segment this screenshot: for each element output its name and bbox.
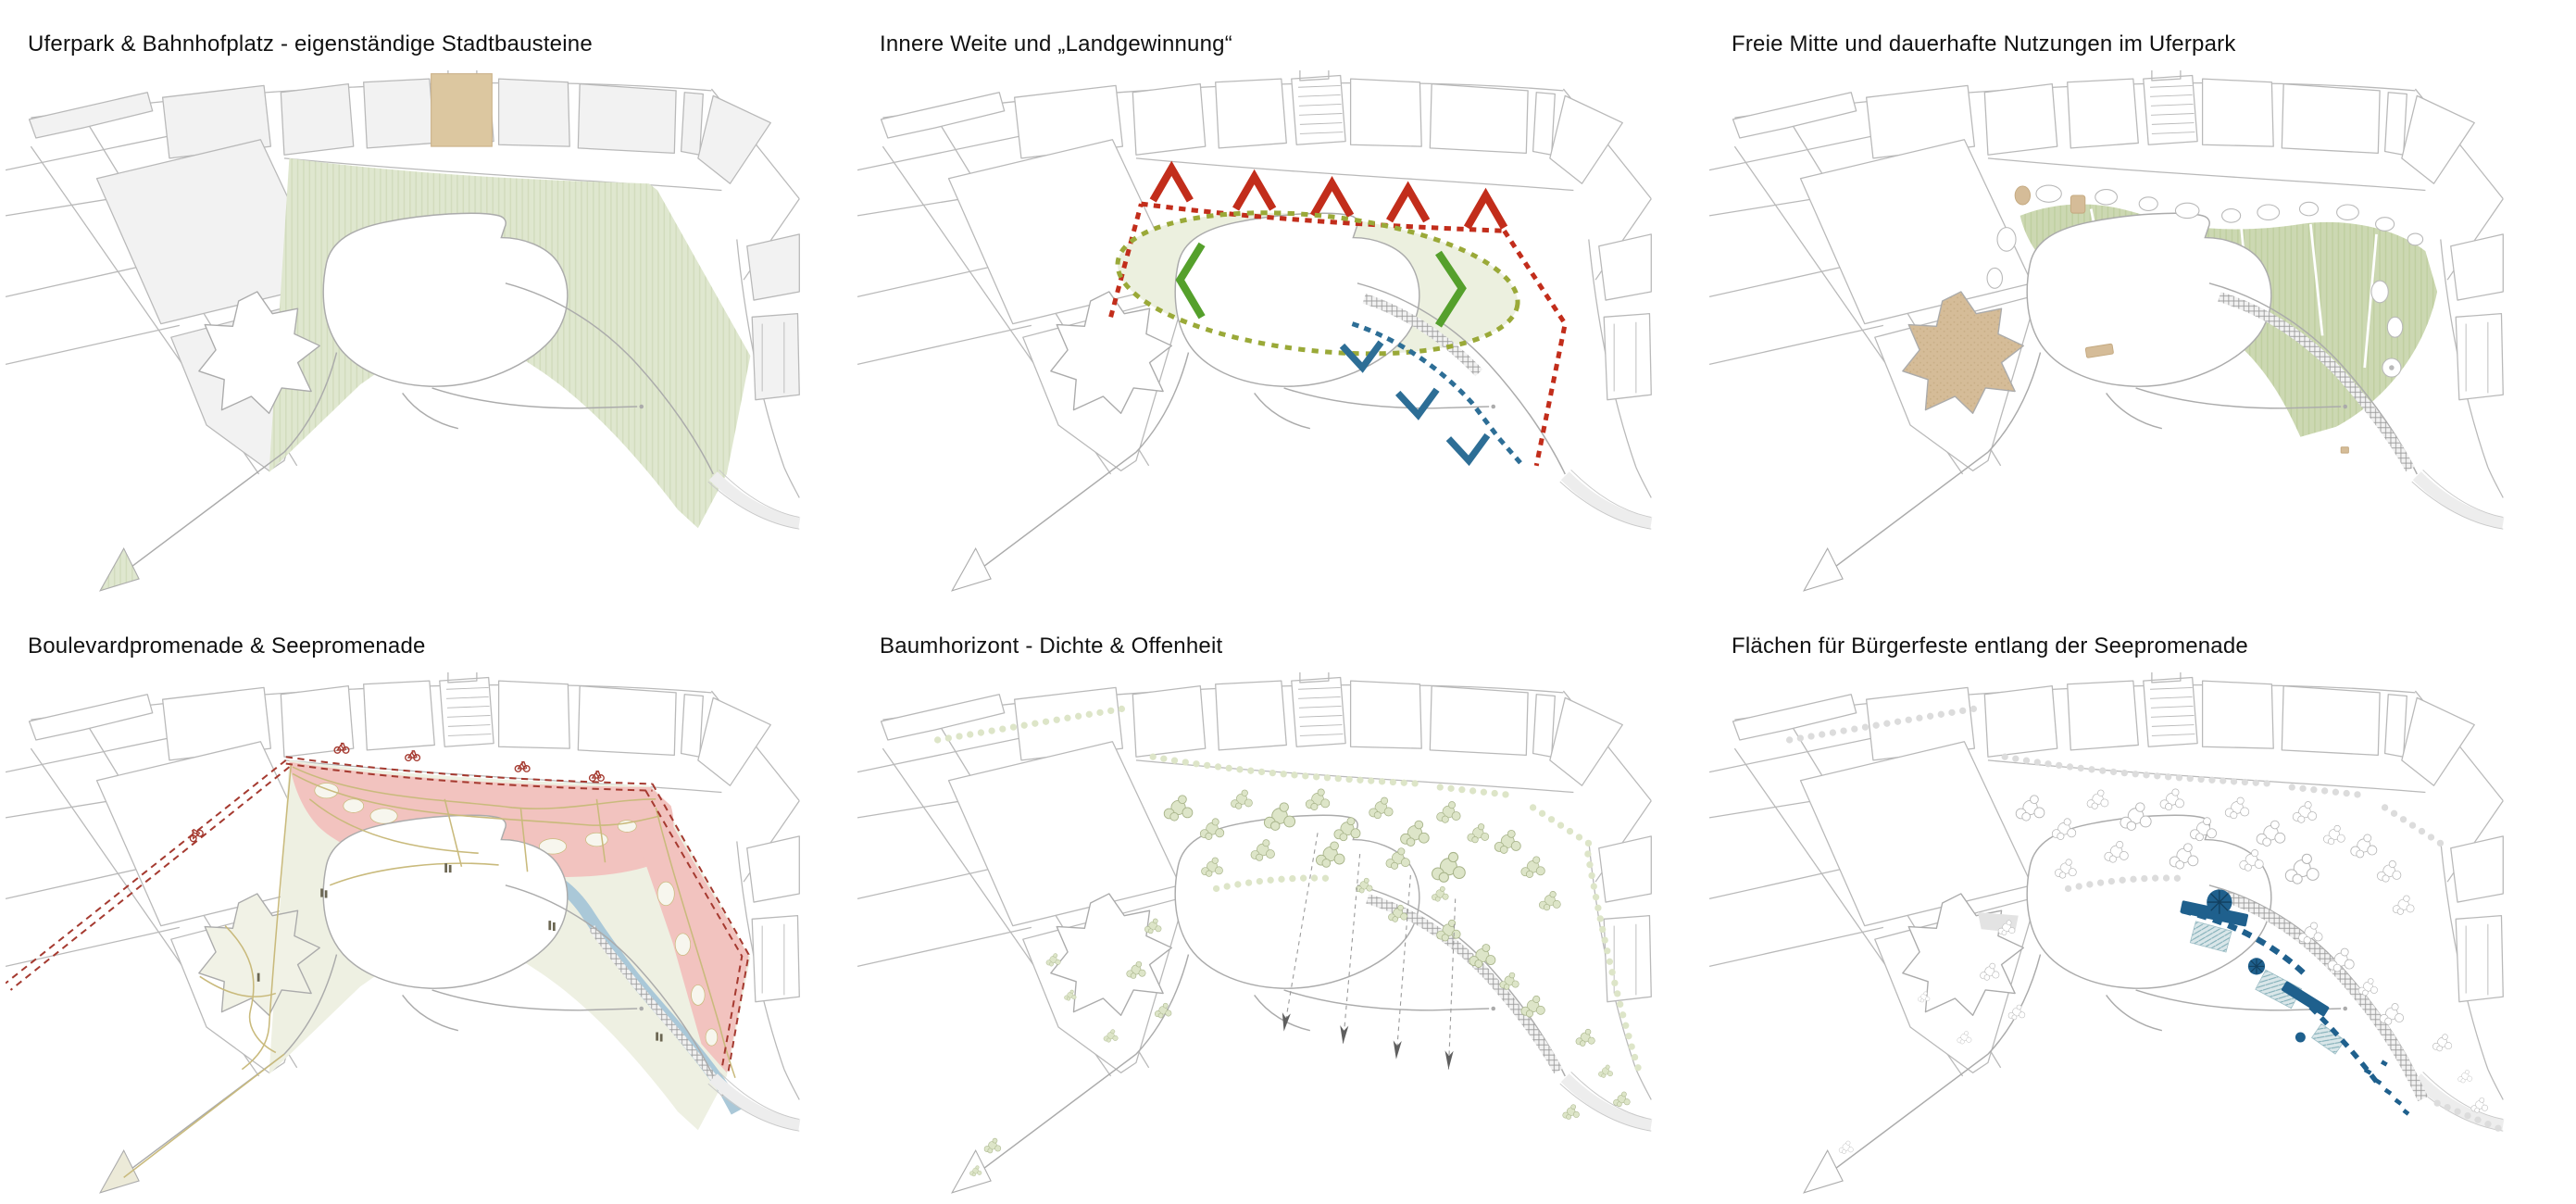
panel-baumhorizont: Baumhorizont - Dichte & Offenheit: [857, 602, 1719, 1202]
panel-freie-mitte: Freie Mitte und dauerhafte Nutzungen im …: [1709, 0, 2570, 600]
map-buergerfeste: [1709, 672, 2570, 1200]
panel-boulevardpromenade: Boulevardpromenade & Seepromenade: [6, 602, 867, 1202]
panel-title: Baumhorizont - Dichte & Offenheit: [857, 602, 1719, 659]
panel-title: Flächen für Bürgerfeste entlang der Seep…: [1709, 602, 2570, 659]
map-uferpark-bahnhofplatz: [6, 70, 867, 598]
map-boulevardpromenade: [6, 672, 867, 1200]
diagram-sheet: Uferpark & Bahnhofplatz - eigenständige …: [0, 0, 2576, 1204]
bahnhofplatz-square: [431, 74, 493, 146]
panel-uferpark-bahnhofplatz: Uferpark & Bahnhofplatz - eigenständige …: [6, 0, 867, 600]
map-baumhorizont: [857, 672, 1719, 1200]
panel-title: Boulevardpromenade & Seepromenade: [6, 602, 867, 659]
panel-buergerfeste: Flächen für Bürgerfeste entlang der Seep…: [1709, 602, 2570, 1202]
panel-title: Innere Weite und „Landgewinnung“: [857, 0, 1719, 57]
map-freie-mitte: [1709, 70, 2570, 598]
panel-innere-weite: Innere Weite und „Landgewinnung“: [857, 0, 1719, 600]
map-innere-weite: [857, 70, 1719, 598]
panel-title: Freie Mitte und dauerhafte Nutzungen im …: [1709, 0, 2570, 57]
panel-title: Uferpark & Bahnhofplatz - eigenständige …: [6, 0, 867, 57]
